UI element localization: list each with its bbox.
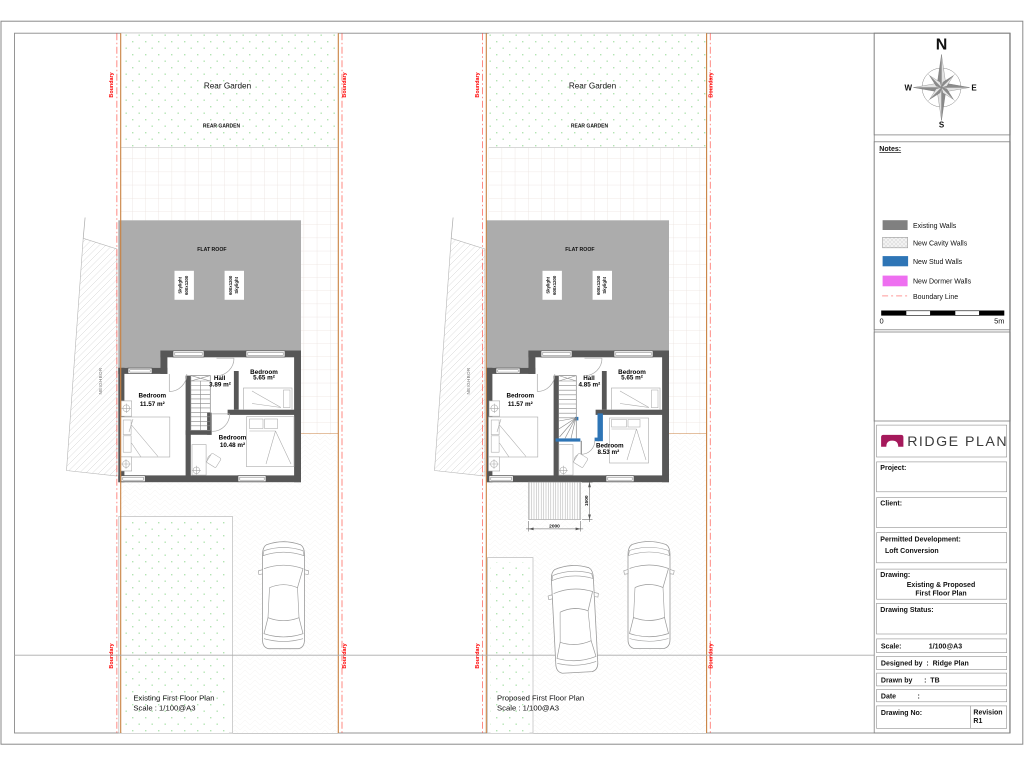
svg-text:REAR GARDEN: REAR GARDEN [203, 123, 241, 129]
svg-text:W: W [905, 83, 913, 92]
svg-text:600x1200: 600x1200 [184, 275, 189, 295]
svg-text:Existing First Floor Plan: Existing First Floor Plan [133, 693, 214, 702]
svg-text:0: 0 [880, 317, 884, 326]
svg-text:S: S [939, 121, 945, 130]
svg-text:Drawing No:: Drawing No: [881, 710, 922, 717]
svg-text:New Dormer Walls: New Dormer Walls [913, 279, 972, 286]
svg-text:1500: 1500 [584, 495, 590, 506]
svg-text:Scale:: Scale: [881, 643, 902, 650]
svg-text:Project:: Project: [880, 465, 906, 472]
svg-text:Drawing:: Drawing: [880, 572, 910, 579]
svg-text:600x1200: 600x1200 [228, 275, 233, 295]
svg-text:Skylight: Skylight [178, 276, 183, 293]
svg-text:Skylight: Skylight [234, 276, 239, 293]
svg-text:Boundary: Boundary [475, 72, 481, 97]
svg-text:NEIGHBOR: NEIGHBOR [98, 367, 103, 394]
svg-text:5.65 m²: 5.65 m² [621, 375, 643, 382]
svg-text:Bedroom: Bedroom [138, 392, 166, 399]
svg-text:5m: 5m [994, 317, 1004, 326]
svg-text:Date :: Date : [881, 693, 920, 700]
svg-text:8.53 m²: 8.53 m² [598, 449, 620, 456]
svg-text:Notes:: Notes: [879, 146, 901, 153]
svg-text:FLAT ROOF: FLAT ROOF [565, 247, 594, 253]
svg-text:REAR GARDEN: REAR GARDEN [571, 123, 609, 129]
svg-text:Scale : 1/100@A3: Scale : 1/100@A3 [497, 703, 559, 712]
svg-text:600x1200: 600x1200 [596, 275, 601, 295]
svg-text:2000: 2000 [549, 523, 560, 529]
svg-text:RIDGE PLAN: RIDGE PLAN [907, 434, 1008, 450]
svg-text:Boundary: Boundary [109, 72, 115, 97]
svg-text:Boundary: Boundary [109, 643, 115, 668]
svg-text:R1: R1 [973, 718, 982, 725]
svg-text:FLAT ROOF: FLAT ROOF [197, 247, 226, 253]
svg-text:Boundary: Boundary [342, 643, 348, 668]
svg-text:Drawing Status:: Drawing Status: [880, 607, 933, 614]
svg-text:Permitted Development:: Permitted Development: [880, 536, 961, 543]
svg-text:Boundary Line: Boundary Line [913, 294, 958, 301]
svg-text:Skylight: Skylight [602, 276, 607, 293]
svg-text:Bedroom: Bedroom [219, 434, 247, 441]
svg-text:E: E [971, 83, 977, 92]
svg-text:Existing Walls: Existing Walls [913, 223, 957, 230]
svg-text:Rear Garden: Rear Garden [204, 82, 252, 91]
svg-text:3.89 m²: 3.89 m² [209, 382, 231, 389]
svg-text:600x1200: 600x1200 [552, 275, 557, 295]
svg-text:New Cavity Walls: New Cavity Walls [913, 241, 968, 248]
svg-text:Boundary: Boundary [708, 72, 714, 97]
svg-text:Designed by : Ridge Plan: Designed by : Ridge Plan [881, 661, 969, 668]
svg-text:11.57 m²: 11.57 m² [508, 401, 533, 408]
svg-text:Drawn by : TB: Drawn by : TB [881, 677, 940, 684]
svg-text:New Stud Walls: New Stud Walls [913, 259, 963, 266]
svg-text:Existing & Proposed: Existing & Proposed [907, 582, 975, 589]
svg-text:First Floor Plan: First Floor Plan [915, 590, 966, 597]
svg-text:N: N [936, 37, 948, 54]
svg-text:Skylight: Skylight [546, 276, 551, 293]
svg-text:5.65 m²: 5.65 m² [253, 375, 275, 382]
svg-text:Loft Conversion: Loft Conversion [885, 548, 939, 555]
svg-text:Proposed First Floor Plan: Proposed First Floor Plan [497, 693, 584, 702]
svg-text:Revision: Revision [973, 710, 1002, 717]
svg-text:11.57 m²: 11.57 m² [140, 401, 165, 408]
svg-text:1/100@A3: 1/100@A3 [929, 643, 962, 650]
svg-text:Client:: Client: [880, 501, 902, 508]
svg-text:Rear Garden: Rear Garden [569, 82, 617, 91]
svg-text:Boundary: Boundary [342, 72, 348, 97]
svg-text:Boundary: Boundary [475, 643, 481, 668]
svg-text:Bedroom: Bedroom [506, 392, 534, 399]
svg-text:10.48 m²: 10.48 m² [220, 442, 245, 449]
svg-text:Boundary: Boundary [708, 643, 714, 668]
svg-text:NEIGHBOR: NEIGHBOR [466, 367, 471, 394]
svg-text:Scale : 1/100@A3: Scale : 1/100@A3 [133, 703, 195, 712]
svg-text:4.85 m²: 4.85 m² [579, 382, 601, 389]
